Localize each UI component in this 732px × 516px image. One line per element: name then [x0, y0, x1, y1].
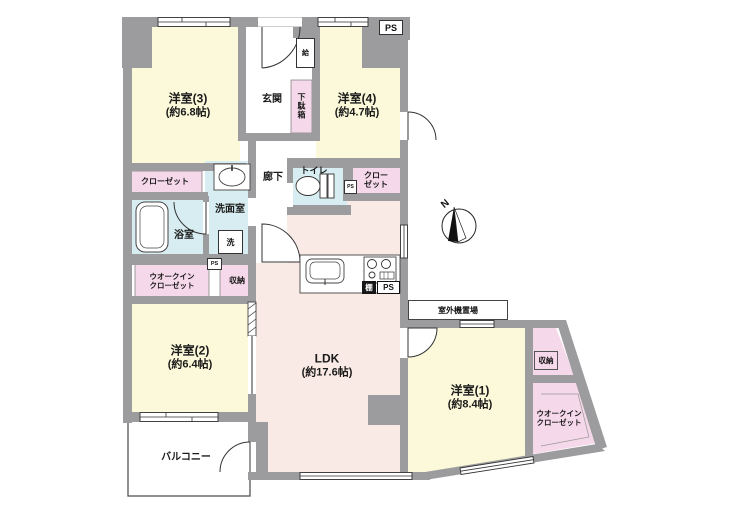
window-room2-bottom: [140, 413, 218, 422]
room-size: (約6.8帖): [166, 107, 211, 121]
room-name: LDK: [302, 352, 353, 367]
room-label-room1: 洋室(1) (約8.4帖): [448, 384, 493, 413]
room-size: (約17.6帖): [302, 367, 353, 381]
room-name: 洋室(4): [335, 92, 380, 107]
compass-north-label: N: [439, 198, 452, 211]
room-size: (約4.7帖): [335, 107, 380, 121]
outdoor-unit-area: 室外機置場: [408, 300, 508, 320]
room-label-ldk: LDK (約17.6帖): [302, 352, 353, 381]
walkin-closet-right-label: ウオークイン クローゼット: [537, 409, 582, 427]
wall-segment: [238, 133, 320, 141]
washbasin-icon: [214, 164, 250, 190]
pipe-space-toilet: PS: [344, 180, 357, 194]
compass: N: [439, 198, 476, 243]
window-room1-top: [460, 321, 494, 328]
room-size: (約6.4帖): [168, 359, 213, 373]
room-label-room4: 洋室(4) (約4.7帖): [335, 92, 380, 121]
wall-segment: [287, 205, 351, 215]
wall-segment: [127, 254, 248, 265]
wall-segment: [238, 17, 246, 141]
wall-segment: [123, 17, 132, 423]
toilet-opening: [287, 183, 293, 207]
room2-sliding-door: [248, 302, 256, 394]
entrance-label: 玄関: [262, 94, 282, 107]
washroom-label: 洗面室: [215, 204, 245, 217]
storage-left-label: 収納: [229, 276, 245, 286]
balcony-label: バルコニー: [161, 452, 211, 465]
wall-segment: [368, 395, 408, 425]
washroom-opening: [248, 198, 256, 226]
closet-right-label: クロー ゼット: [364, 171, 388, 189]
pipe-space-kitchen: PS: [377, 281, 400, 294]
water-heater-box: 給: [296, 38, 315, 68]
floor-plan: N 洋室(3) (約6.8帖) 洋室(4) (約4.7帖) 洋室(2) (約6.…: [0, 0, 732, 516]
window-ldk-right: [401, 225, 408, 258]
wall-segment: [129, 192, 208, 200]
room-name: 洋室(3): [166, 92, 211, 107]
room-label-room2: 洋室(2) (約6.4帖): [168, 344, 213, 373]
window-ldk-bottom: [300, 473, 412, 480]
pipe-space-left: PS: [207, 258, 222, 270]
shoe-cabinet-label: 下駄箱: [296, 93, 306, 120]
room-label-room3: 洋室(3) (約6.8帖): [166, 92, 211, 121]
wall-segment: [533, 375, 577, 383]
window-room4: [318, 18, 368, 27]
washer-box: 洗: [218, 230, 243, 254]
room-size: (約8.4帖): [448, 399, 493, 413]
wall-segment: [362, 33, 400, 68]
pipe-space-top-right: PS: [379, 20, 403, 35]
wall-segment: [343, 193, 408, 201]
room-name: 洋室(1): [448, 384, 493, 399]
room-name: 洋室(2): [168, 344, 213, 359]
bathroom-label: 浴室: [174, 230, 194, 243]
toilet-label: トイレ: [300, 165, 327, 176]
walkin-closet-left-label: ウオークイン クローゼット: [150, 272, 195, 290]
wall-segment: [127, 296, 256, 304]
corridor-label: 廊下: [263, 172, 283, 185]
shelf-box: 棚: [362, 281, 376, 294]
window-room3: [158, 18, 230, 27]
wall-segment: [293, 27, 320, 38]
room4-door: [400, 112, 436, 140]
storage-right-label: 収納: [534, 351, 558, 370]
wall-segment: [525, 328, 533, 458]
closet-left-label: クローゼット: [141, 177, 189, 187]
floor-plan-drawing: N: [0, 0, 732, 516]
bathtub-icon: [136, 202, 168, 252]
stove-icon: [364, 257, 396, 283]
